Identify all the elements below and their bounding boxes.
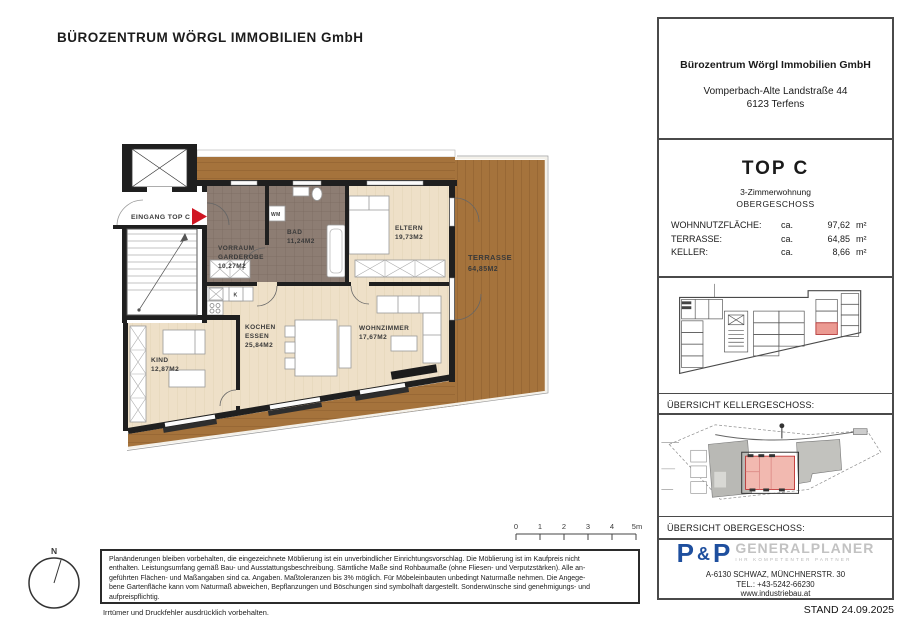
company-name: Bürozentrum Wörgl Immobilien GmbH <box>659 59 892 71</box>
entrance-label: EINGANG TOP C <box>131 214 190 221</box>
area-row: TERRASSE: ca. 64,85 m² <box>671 233 880 247</box>
svg-text:BAD: BAD <box>287 229 302 236</box>
svg-text:KIND: KIND <box>151 357 169 364</box>
svg-text:VORRAUM: VORRAUM <box>218 245 254 252</box>
toilet <box>312 188 322 201</box>
floor-plan: EINGANG TOP C VORRAUM GARDEROBE 10,27M2 … <box>105 130 555 460</box>
parents-wardrobe <box>355 260 445 277</box>
child-bed <box>163 330 205 354</box>
disclaimer-line: Planänderungen bleiben vorbehalten, die … <box>109 555 631 564</box>
svg-text:3: 3 <box>586 522 590 531</box>
company-city: 6123 Terfens <box>659 99 892 110</box>
unit-title: TOP C <box>659 158 892 180</box>
og-highlight-unit <box>746 456 795 489</box>
og-overview-label: ÜBERSICHT OBERGESCHOSS: <box>659 516 892 539</box>
keller-overview-box: ÜBERSICHT KELLERGESCHOSS: <box>657 276 894 415</box>
child-wardrobe <box>130 326 146 422</box>
disclaimer-line: enthalten. Leistungsumfang gemäß Bau- un… <box>109 564 631 573</box>
keller-overview-plan <box>659 278 892 388</box>
pp-website: www.industriebau.at <box>706 589 845 599</box>
bath-sink <box>293 187 309 196</box>
disclaimer-line: geführten Flächen- und Maßangaben sind c… <box>109 574 631 583</box>
pp-logo-box: P & P GENERALPLANER IHR KOMPETENTER PART… <box>657 538 894 600</box>
svg-text:TERRASSE: TERRASSE <box>468 253 512 262</box>
compass: N <box>20 543 90 613</box>
disclaimer-line: aufpreispflichtig. <box>109 593 631 602</box>
svg-text:17,67M2: 17,67M2 <box>359 334 387 341</box>
svg-text:GARDEROBE: GARDEROBE <box>218 254 264 261</box>
pp-logo-p1: P <box>677 541 694 565</box>
pp-tagline: IHR KOMPETENTER PARTNER <box>735 557 874 562</box>
pp-address: A-6130 SCHWAZ, MÜNCHNERSTR. 30 <box>706 570 845 580</box>
k-label: K <box>234 293 238 299</box>
pp-logo-p2: P <box>713 541 730 565</box>
dining-table <box>285 320 351 376</box>
compass-north-label: N <box>51 546 57 556</box>
company-street: Vomperbach-Alte Landstraße 44 <box>659 86 892 97</box>
area-row: WOHNNUTZFLÄCHE: ca. 97,62 m² <box>671 219 880 233</box>
svg-text:4: 4 <box>610 522 614 531</box>
pp-logo-amp: & <box>697 541 710 567</box>
pp-logo: P & P GENERALPLANER IHR KOMPETENTER PART… <box>677 541 875 567</box>
coffee-table <box>391 336 417 351</box>
svg-text:11,24M2: 11,24M2 <box>287 238 315 245</box>
unit-floor: OBERGESCHOSS <box>659 199 892 209</box>
unit-type: 3-Zimmerwohnung <box>659 187 892 197</box>
og-overview-plan <box>659 415 892 511</box>
keller-highlight-cell <box>816 323 837 335</box>
svg-text:WOHNZIMMER: WOHNZIMMER <box>359 325 409 332</box>
company-info-box: Bürozentrum Wörgl Immobilien GmbH Vomper… <box>657 17 894 140</box>
parents-bed <box>349 196 389 254</box>
pp-address-block: A-6130 SCHWAZ, MÜNCHNERSTR. 30 TEL.: +43… <box>706 570 845 599</box>
svg-text:64,85M2: 64,85M2 <box>468 266 498 273</box>
svg-text:0: 0 <box>514 522 518 531</box>
svg-text:ESSEN: ESSEN <box>245 333 269 340</box>
pp-telephone: TEL.: +43-5242-66230 <box>706 580 845 590</box>
disclaimer-box: Planänderungen bleiben vorbehalten, die … <box>100 549 640 604</box>
svg-text:12,87M2: 12,87M2 <box>151 366 179 373</box>
plan-sheet: BÜROZENTRUM WÖRGL IMMOBILIEN GmbH <box>0 0 900 637</box>
disclaimer-note: Irrtümer und Druckfehler ausdrücklich vo… <box>103 608 269 617</box>
pp-brand: GENERALPLANER <box>735 541 874 556</box>
svg-text:ELTERN: ELTERN <box>395 225 423 232</box>
svg-text:25,84M2: 25,84M2 <box>245 342 273 349</box>
svg-text:19,73M2: 19,73M2 <box>395 234 423 241</box>
page-title: BÜROZENTRUM WÖRGL IMMOBILIEN GmbH <box>57 30 363 45</box>
svg-text:5m: 5m <box>632 522 642 531</box>
stair-core <box>113 144 207 315</box>
unit-info-box: TOP C 3-Zimmerwohnung OBERGESCHOSS WOHNN… <box>657 138 894 278</box>
svg-text:10,27M2: 10,27M2 <box>218 263 246 270</box>
area-row: KELLER: ca. 8,66 m² <box>671 246 880 260</box>
svg-text:KOCHEN: KOCHEN <box>245 324 276 331</box>
svg-text:1: 1 <box>538 522 542 531</box>
area-table: WOHNNUTZFLÄCHE: ca. 97,62 m² TERRASSE: c… <box>659 219 892 260</box>
svg-text:2: 2 <box>562 522 566 531</box>
plan-date-stamp: STAND 24.09.2025 <box>657 604 894 616</box>
disclaimer-line: bene Gartenfläche kann vom Naturmaß abwe… <box>109 583 631 592</box>
wm-label: WM <box>271 212 281 218</box>
scale-bar: 0 1 2 3 4 5m <box>508 520 648 546</box>
og-overview-box: ÜBERSICHT OBERGESCHOSS: <box>657 413 894 540</box>
stairs <box>127 229 197 315</box>
